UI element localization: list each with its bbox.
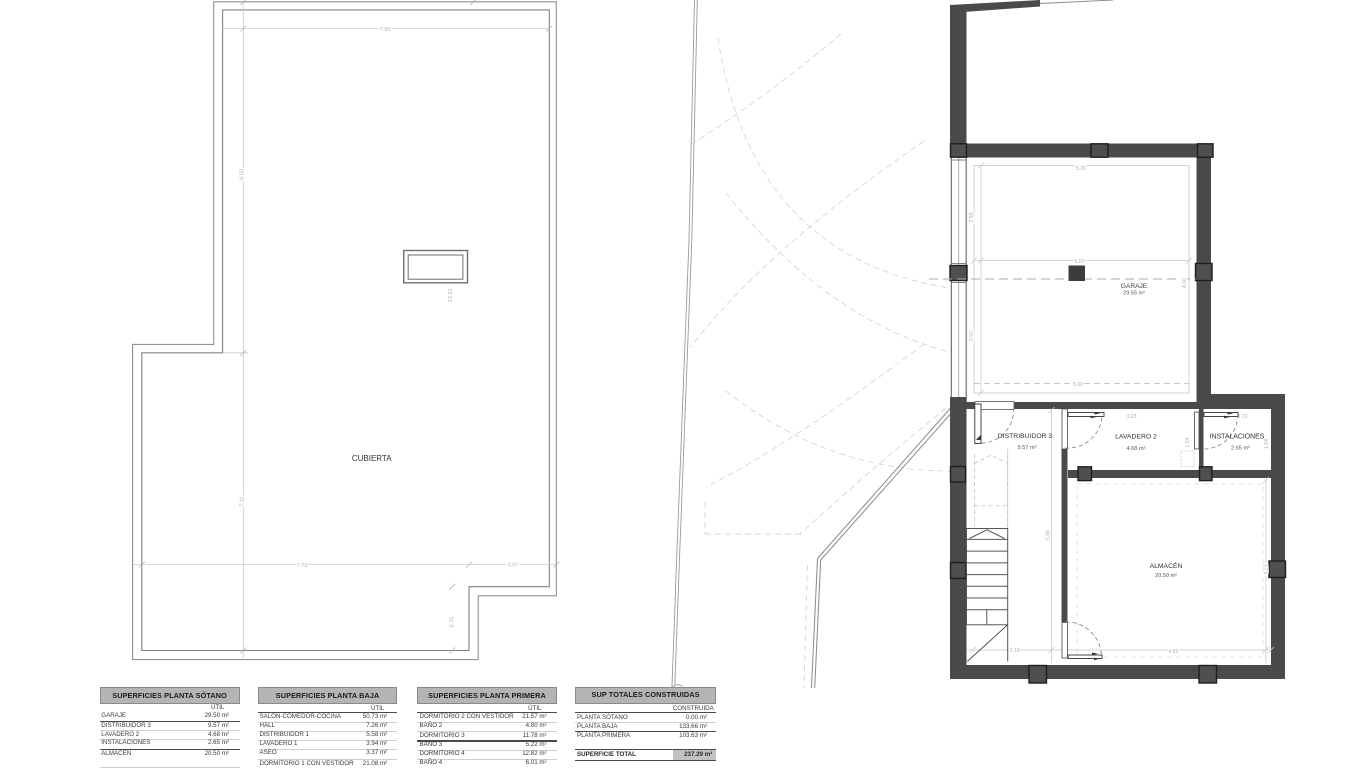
svg-text:1.54: 1.54 [1264,439,1270,449]
svg-text:5.70: 5.70 [450,617,456,628]
svg-text:4.85: 4.85 [1168,649,1178,655]
svg-text:4.23: 4.23 [1264,564,1270,574]
svg-text:7.11: 7.11 [240,497,246,507]
svg-text:INSTALACIONES: INSTALACIONES [1210,433,1265,440]
svg-text:5.00: 5.00 [1073,382,1083,388]
svg-text:20.50 m²: 20.50 m² [1155,573,1177,579]
svg-text:2.18: 2.18 [1010,648,1020,654]
svg-text:DISTRIBUIDOR 3: DISTRIBUIDOR 3 [998,433,1053,440]
svg-text:5.88: 5.88 [1046,530,1052,540]
svg-text:LAVADERO 2: LAVADERO 2 [1115,433,1157,440]
svg-text:2.50: 2.50 [969,331,975,341]
svg-text:ALMACÉN: ALMACÉN [1150,561,1183,570]
svg-text:CUBIERTA: CUBIERTA [352,454,392,463]
svg-text:7.95: 7.95 [380,27,391,33]
svg-text:2.65 m²: 2.65 m² [1231,446,1250,452]
svg-text:5.26: 5.26 [1076,166,1086,172]
svg-text:7.73: 7.73 [297,563,308,569]
svg-text:2.50: 2.50 [969,212,975,222]
svg-text:5.00: 5.00 [1074,259,1084,265]
svg-text:4.68 m²: 4.68 m² [1127,446,1146,452]
svg-text:3.03: 3.03 [1126,414,1136,420]
svg-text:3.07: 3.07 [508,562,519,568]
svg-text:13.51: 13.51 [448,288,454,302]
svg-text:9.57 m²: 9.57 m² [1018,445,1037,451]
svg-text:GARAJE: GARAJE [1121,283,1148,290]
svg-text:8.50: 8.50 [240,169,246,180]
svg-text:4.60: 4.60 [1182,278,1188,288]
svg-text:1.72: 1.72 [1237,414,1247,420]
svg-text:29.55 m²: 29.55 m² [1123,291,1145,297]
svg-text:1.54: 1.54 [1185,437,1191,447]
